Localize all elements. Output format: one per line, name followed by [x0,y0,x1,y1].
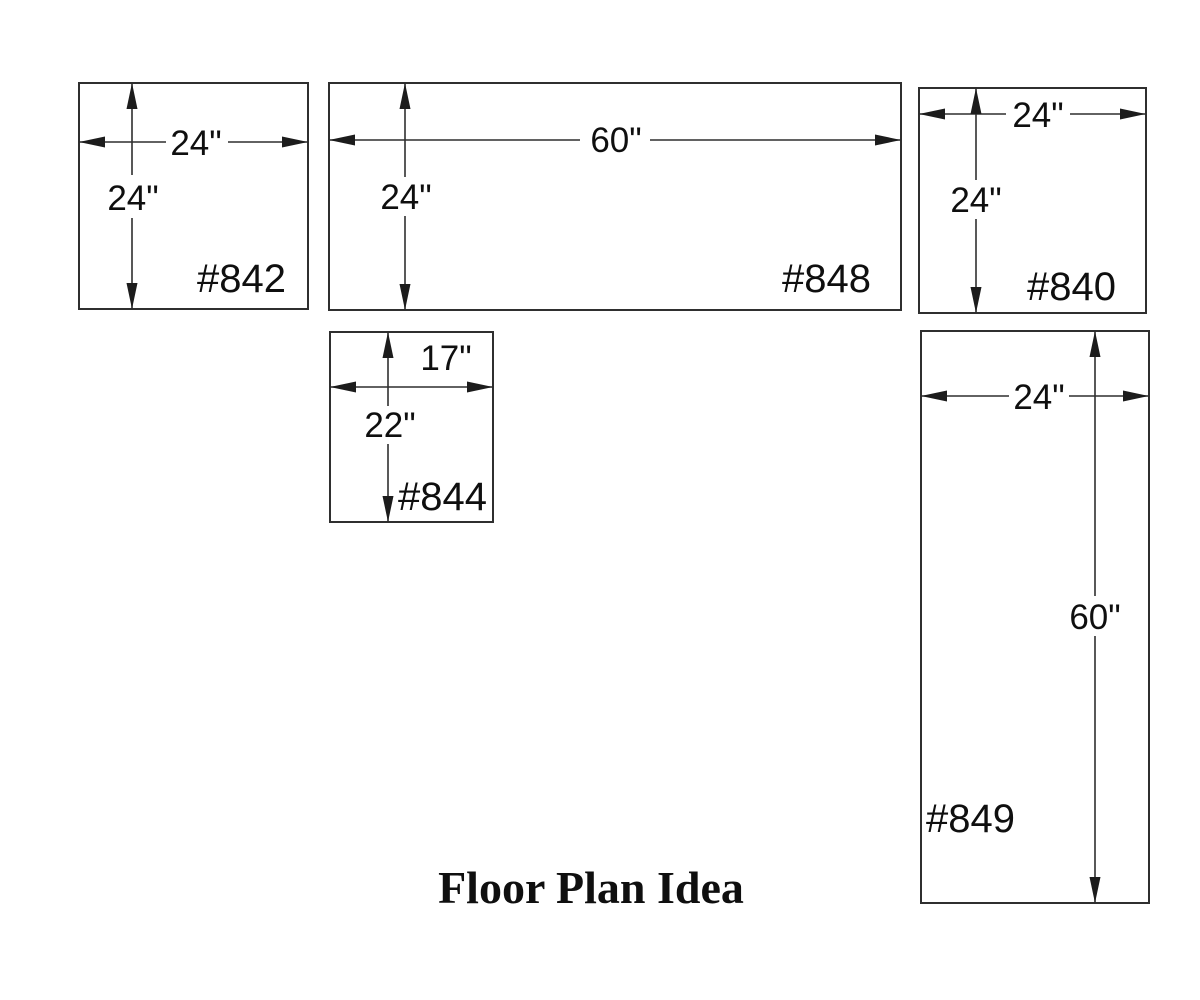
arrow-right-icon [467,382,493,393]
unit-848-height-label: 24" [380,178,431,217]
unit-849-id-label: #849 [926,797,1015,841]
diagram-title: Floor Plan Idea [438,862,744,913]
arrow-left-icon [329,135,355,146]
unit-844-width-label: 17" [420,339,471,378]
arrow-down-icon [127,283,138,309]
unit-840-height-label: 24" [950,181,1001,220]
unit-842-width-label: 24" [170,124,221,163]
unit-842-id-label: #842 [197,257,286,301]
unit-840-id-label: #840 [1027,265,1116,309]
arrow-up-icon [971,88,982,114]
arrow-up-icon [1090,331,1101,357]
arrow-down-icon [971,287,982,313]
unit-848-width-label: 60" [590,121,641,160]
arrow-down-icon [383,496,394,522]
arrow-left-icon [919,109,945,120]
arrow-right-icon [875,135,901,146]
arrow-up-icon [383,332,394,358]
unit-840: 24" 24" #840 [919,88,1146,313]
arrow-left-icon [79,137,105,148]
arrow-right-icon [282,137,308,148]
arrow-down-icon [400,284,411,310]
unit-849: 24" 60" #849 [921,331,1149,903]
arrow-up-icon [400,83,411,109]
unit-849-width-label: 24" [1013,378,1064,417]
arrow-right-icon [1123,391,1149,402]
unit-849-height-label: 60" [1069,598,1120,637]
unit-844-id-label: #844 [398,475,487,519]
arrow-left-icon [921,391,947,402]
arrow-right-icon [1120,109,1146,120]
arrow-down-icon [1090,877,1101,903]
unit-844: 17" 22" #844 [330,332,493,522]
unit-842: 24" 24" #842 [79,83,308,309]
arrow-left-icon [330,382,356,393]
unit-840-width-label: 24" [1012,96,1063,135]
unit-842-height-label: 24" [107,179,158,218]
arrow-up-icon [127,83,138,109]
unit-848: 60" 24" #848 [329,83,901,310]
unit-848-id-label: #848 [782,257,871,301]
floor-plan-diagram: 24" 24" #842 60" 24" #848 [0,0,1200,1000]
floor-plan-svg: 24" 24" #842 60" 24" #848 [0,0,1200,1000]
unit-844-height-label: 22" [364,406,415,445]
